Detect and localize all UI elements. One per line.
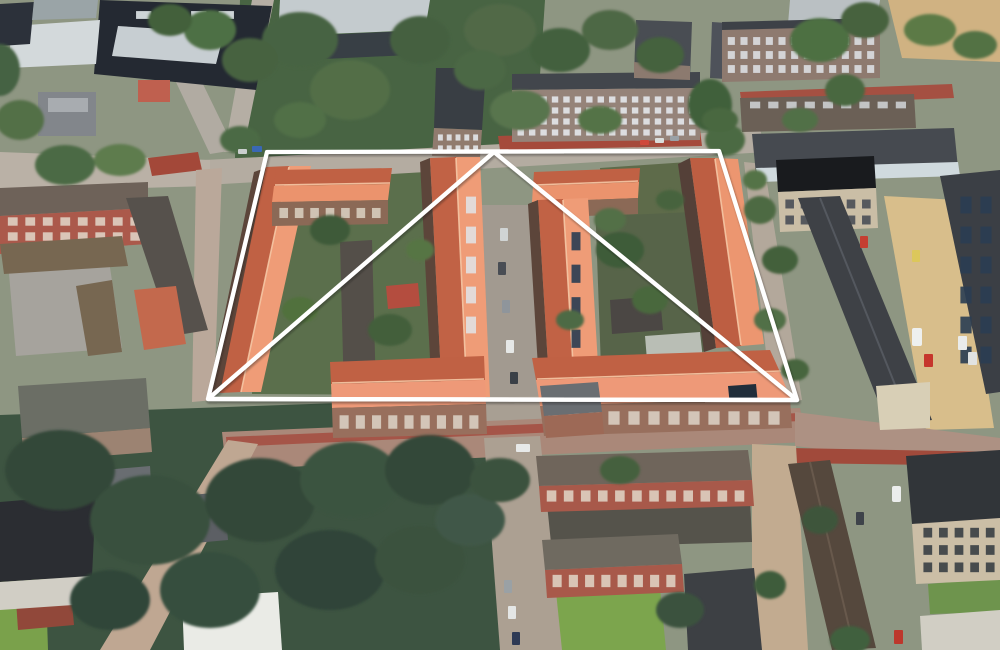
car — [502, 300, 510, 313]
tree — [464, 4, 536, 56]
tree — [90, 475, 210, 565]
tree — [406, 239, 434, 261]
tree — [702, 108, 738, 132]
car — [238, 149, 247, 154]
modern-br-roof — [906, 450, 1000, 524]
car — [252, 146, 262, 152]
row-brown-dormers — [750, 102, 906, 109]
tree — [556, 310, 584, 330]
dark-long-row-gable — [876, 382, 930, 430]
tree — [184, 10, 236, 50]
tree — [744, 196, 776, 224]
car — [958, 336, 967, 350]
tree — [490, 90, 550, 130]
tree — [582, 10, 638, 50]
tree — [94, 144, 146, 176]
tree — [841, 2, 889, 38]
car — [516, 444, 530, 452]
aerial-map-viewport[interactable] — [0, 0, 1000, 650]
car — [504, 580, 512, 593]
hipped-house-ridge — [48, 98, 88, 112]
small-red-house — [138, 80, 170, 102]
houses-left-bottom-roof — [18, 378, 150, 438]
car — [894, 630, 903, 644]
car — [860, 236, 868, 248]
modern-black-roof — [776, 156, 876, 192]
row-brown-ne — [740, 94, 916, 132]
hedge-bottom-right — [928, 578, 1000, 614]
car — [655, 138, 664, 143]
tree — [300, 442, 400, 518]
frontrow-west-roof-south — [331, 380, 486, 408]
pale-bottom-right — [920, 610, 1000, 650]
car — [640, 140, 649, 145]
tree — [35, 145, 95, 185]
tree — [656, 190, 684, 210]
tree — [904, 14, 956, 46]
tree — [530, 28, 590, 72]
tree — [70, 570, 150, 630]
tree — [600, 456, 640, 484]
car — [968, 352, 977, 365]
aerial-photo — [0, 0, 1000, 650]
tree — [470, 458, 530, 502]
car — [500, 228, 508, 241]
rowB-bottom-facade — [545, 564, 684, 598]
tree — [368, 314, 412, 346]
van — [892, 486, 901, 502]
tree — [275, 530, 385, 610]
tree — [454, 50, 506, 90]
scene-layers — [0, 0, 1000, 650]
unit-dark-left — [0, 2, 34, 46]
tree — [754, 571, 786, 599]
rowA-bottom-roof — [536, 450, 752, 486]
car — [510, 372, 518, 384]
tree — [205, 458, 315, 542]
tree — [762, 246, 798, 274]
car — [912, 250, 920, 262]
tree — [160, 552, 260, 628]
lawn-bottom-center — [550, 588, 666, 650]
tree — [435, 494, 505, 546]
house-mid-facade — [544, 412, 604, 438]
tree — [636, 37, 684, 73]
tree — [743, 170, 767, 190]
tree — [310, 215, 350, 245]
units-grey-topleft — [32, 0, 98, 20]
car — [856, 512, 864, 525]
tree — [782, 108, 818, 132]
tree — [148, 4, 192, 36]
tree — [578, 106, 622, 134]
car — [506, 340, 514, 353]
tree — [274, 102, 326, 138]
rowB-bottom-roof — [542, 534, 682, 570]
frontrow-west-windows — [340, 415, 479, 428]
tree — [656, 592, 704, 628]
car — [670, 136, 679, 141]
car — [924, 354, 933, 367]
car — [498, 262, 506, 275]
red-garden-shed — [386, 283, 420, 309]
tree — [594, 208, 626, 232]
van — [912, 328, 922, 346]
tree — [953, 31, 997, 59]
tree — [390, 16, 450, 64]
rowA-roof-south — [272, 184, 390, 202]
car — [512, 632, 520, 645]
tree — [596, 232, 644, 268]
tree — [790, 18, 850, 62]
tree — [222, 38, 278, 82]
tree — [385, 435, 475, 505]
tree — [802, 506, 838, 534]
car — [508, 606, 516, 619]
tree — [825, 74, 865, 106]
